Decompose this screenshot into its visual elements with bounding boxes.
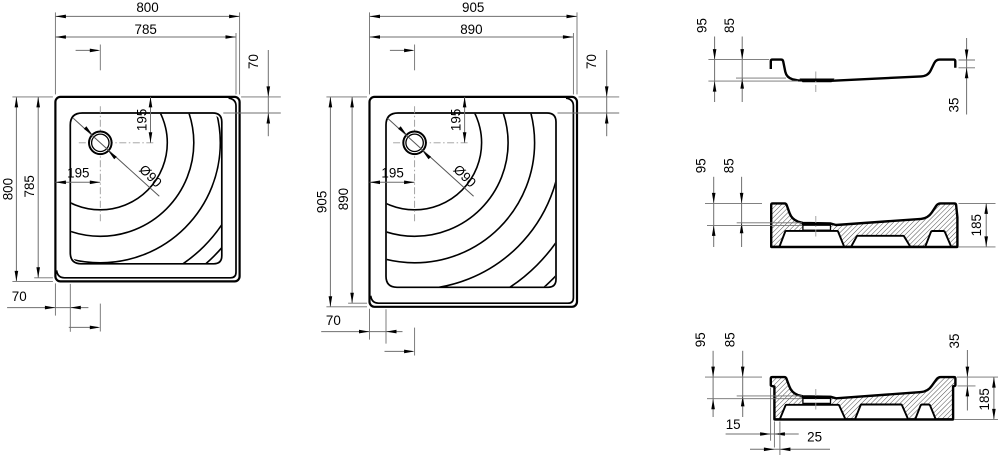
- svg-text:890: 890: [336, 188, 351, 210]
- svg-text:785: 785: [22, 175, 37, 197]
- svg-text:85: 85: [723, 332, 738, 347]
- svg-text:70: 70: [584, 54, 599, 69]
- svg-text:800: 800: [136, 0, 158, 15]
- svg-text:905: 905: [314, 191, 329, 213]
- svg-text:Ø90: Ø90: [451, 162, 480, 191]
- svg-text:185: 185: [977, 388, 992, 410]
- svg-text:195: 195: [381, 166, 403, 181]
- svg-text:15: 15: [726, 417, 741, 432]
- svg-text:35: 35: [947, 334, 962, 349]
- svg-text:905: 905: [462, 0, 484, 15]
- svg-text:195: 195: [67, 166, 89, 181]
- svg-text:35: 35: [946, 98, 961, 113]
- svg-text:70: 70: [246, 54, 261, 69]
- svg-text:95: 95: [694, 18, 709, 33]
- svg-text:800: 800: [0, 178, 15, 200]
- svg-text:785: 785: [135, 22, 157, 37]
- svg-text:70: 70: [12, 289, 27, 304]
- svg-text:Ø90: Ø90: [136, 162, 165, 191]
- svg-text:25: 25: [807, 430, 822, 445]
- svg-text:85: 85: [721, 158, 736, 173]
- svg-text:890: 890: [460, 22, 482, 37]
- svg-text:195: 195: [135, 109, 150, 131]
- svg-text:195: 195: [449, 109, 464, 131]
- svg-text:185: 185: [969, 214, 984, 236]
- svg-text:70: 70: [326, 313, 341, 328]
- svg-text:95: 95: [694, 158, 709, 173]
- svg-text:95: 95: [693, 332, 708, 347]
- svg-text:85: 85: [722, 18, 737, 33]
